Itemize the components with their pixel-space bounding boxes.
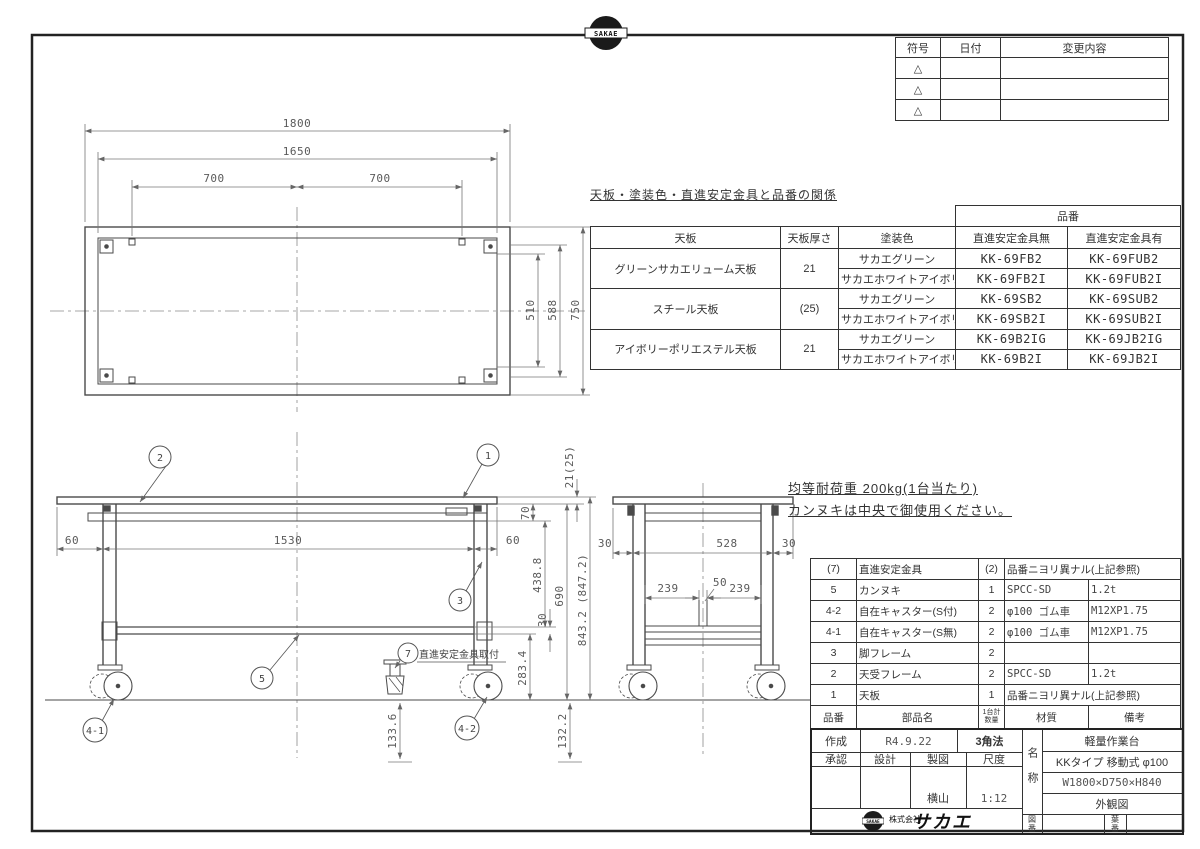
relation-part-no: KK-69SUB2I: [1068, 309, 1181, 329]
front-dim-133-6: 133.6: [386, 713, 399, 749]
parts-header-name: 部品名: [857, 706, 979, 729]
revision-symbol: △: [896, 58, 941, 79]
note-load-capacity: 均等耐荷重 200kg(1台当たり): [788, 478, 1012, 500]
part-material: 品番ニヨリ異ナル(上記参照): [1005, 559, 1181, 580]
front-dim-132-2: 132.2: [556, 713, 569, 749]
scale-label: 尺度: [966, 752, 1022, 766]
front-dim-60-right: 60: [506, 534, 520, 547]
relation-part-no: KK-69JB2I: [1068, 349, 1181, 369]
relation-part-no: KK-69FUB2: [1068, 249, 1181, 269]
name-label: 名称: [1022, 730, 1042, 814]
parts-header-no: 品番: [811, 706, 857, 729]
plan-view: [85, 227, 510, 395]
product-name: 軽量作業台: [1042, 730, 1182, 751]
approve-label: 承認: [812, 752, 860, 766]
drawing-sheet: 1800 1650 700 700 510 588 750: [0, 0, 1200, 849]
relation-part-no: KK-69B2IG: [956, 329, 1068, 349]
relation-color: サカエグリーン: [839, 249, 956, 269]
plan-dim-510: 510: [524, 299, 537, 320]
part-remarks: 1.2t: [1089, 580, 1181, 601]
relation-header-part-no: 品番: [956, 206, 1181, 227]
part-qty: 2: [979, 664, 1005, 685]
relation-part-no: KK-69FB2I: [956, 269, 1068, 289]
created-label: 作成: [812, 730, 860, 752]
parts-header-qty2: 数量: [981, 717, 1002, 725]
revision-date: [941, 79, 1001, 100]
part-no: 5: [811, 580, 857, 601]
plan-dim-588: 588: [546, 299, 559, 320]
revision-header-symbol: 符号: [896, 38, 941, 58]
relation-spacer: [591, 206, 956, 227]
side-dim-50: 50: [713, 576, 727, 589]
part-name: カンヌキ: [857, 580, 979, 601]
drawing-no-value: [1042, 814, 1104, 833]
relation-part-no: KK-69SB2: [956, 289, 1068, 309]
plan-dim-700-left: 700: [203, 172, 224, 185]
scale-value: 1:12: [966, 788, 1022, 808]
part-remarks: M12XP1.75: [1089, 622, 1181, 643]
revision-symbol: △: [896, 100, 941, 121]
revision-header-date: 日付: [941, 38, 1001, 58]
part-qty: (2): [979, 559, 1005, 580]
company-name-big: サカエ: [912, 808, 972, 833]
product-type: KKタイプ 移動式 φ100: [1042, 751, 1182, 772]
part-material: φ100 ゴム車: [1005, 622, 1089, 643]
part-name: 自在キャスター(S付): [857, 601, 979, 622]
revision-header-change: 変更内容: [1001, 38, 1169, 58]
relation-part-no: KK-69JB2IG: [1068, 329, 1181, 349]
relation-top-board: アイボリーポリエステル天板: [591, 329, 781, 369]
part-qty: 2: [979, 622, 1005, 643]
front-dim-690: 690: [553, 585, 566, 606]
revision-change: [1001, 58, 1169, 79]
plan-dim-750: 750: [569, 299, 582, 320]
relation-thickness: (25): [781, 289, 839, 329]
part-qty: 2: [979, 643, 1005, 664]
part-remarks: 1.2t: [1089, 664, 1181, 685]
front-dim-438-8: 438.8: [531, 557, 544, 593]
side-dim-239-left: 239: [657, 582, 678, 595]
balloon-7: 7: [405, 649, 411, 660]
balloon-4-1: 4-1: [86, 726, 104, 737]
side-dim-30-left: 30: [598, 537, 612, 550]
relation-thickness: 21: [781, 329, 839, 369]
parts-table: (7) 直進安定金具 (2) 品番ニヨリ異ナル(上記参照) 5 カンヌキ 1 S…: [810, 558, 1181, 729]
part-name: 天板: [857, 685, 979, 706]
relation-top-board: グリーンサカエリューム天板: [591, 249, 781, 289]
plan-view-dimensions: [85, 124, 590, 395]
part-name: 天受フレーム: [857, 664, 979, 685]
revision-table: 符号 日付 変更内容 △ △ △: [895, 37, 1169, 121]
relation-header-top-board: 天板: [591, 227, 781, 249]
sakae-stamp-top-text: SAKAE: [594, 30, 618, 38]
company-name-small: 株式会社: [889, 816, 907, 825]
balloon-4-2: 4-2: [458, 724, 476, 735]
drawing-kind: 外観図: [1042, 793, 1182, 814]
relation-header-paint-color: 塗装色: [839, 227, 956, 249]
front-dim-60-left: 60: [65, 534, 79, 547]
side-dim-528: 528: [716, 537, 737, 550]
relation-table: 品番 天板 天板厚さ 塗装色 直進安定金具無 直進安定金具有 グリーンサカエリュ…: [590, 205, 1181, 370]
part-name: 脚フレーム: [857, 643, 979, 664]
draft-label: 製図: [910, 752, 966, 766]
part-material: 品番ニヨリ異ナル(上記参照): [1005, 685, 1181, 706]
relation-part-no: KK-69FUB2I: [1068, 269, 1181, 289]
balloon-5: 5: [259, 674, 265, 685]
divider: [812, 766, 1022, 767]
front-dim-30: 30: [536, 613, 549, 627]
part-no: 4-2: [811, 601, 857, 622]
revision-date: [941, 100, 1001, 121]
front-dim-843-2: 843.2 (847.2): [576, 554, 589, 647]
relation-part-no: KK-69FB2: [956, 249, 1068, 269]
parts-header-qty1: 1台計: [981, 709, 1002, 717]
relation-table-title: 天板・塗装色・直進安定金具と品番の関係: [590, 186, 837, 203]
relation-color: サカエホワイトアイボリー: [839, 309, 956, 329]
part-no: 2: [811, 664, 857, 685]
relation-part-no: KK-69SB2I: [956, 309, 1068, 329]
part-no: 1: [811, 685, 857, 706]
part-material: SPCC-SD: [1005, 580, 1089, 601]
part-name: 自在キャスター(S無): [857, 622, 979, 643]
revision-change: [1001, 79, 1169, 100]
part-qty: 1: [979, 685, 1005, 706]
part-no: 3: [811, 643, 857, 664]
note-kannuki: カンヌキは中央で御使用ください。: [788, 500, 1012, 522]
part-material: SPCC-SD: [1005, 664, 1089, 685]
product-size: W1800×D750×H840: [1042, 772, 1182, 793]
projection-method: 3角法: [957, 730, 1022, 752]
notes: 均等耐荷重 200kg(1台当たり) カンヌキは中央で御使用ください。: [788, 478, 1012, 522]
relation-color: サカエホワイトアイボリー: [839, 349, 956, 369]
revision-change: [1001, 100, 1169, 121]
front-dim-283-4: 283.4: [516, 650, 529, 686]
part-material: φ100 ゴム車: [1005, 601, 1089, 622]
relation-header-with: 直進安定金具有: [1068, 227, 1181, 249]
plan-dim-1800: 1800: [283, 117, 312, 130]
front-dim-21-25: 21(25): [563, 446, 576, 489]
sheet-no-label: 葉番: [1104, 814, 1126, 833]
part-remarks: M12XP1.75: [1089, 601, 1181, 622]
sakae-logo-text: SAKAE: [866, 818, 880, 824]
drawing-no-label: 図番: [1022, 814, 1042, 833]
part-qty: 1: [979, 580, 1005, 601]
part-no: 4-1: [811, 622, 857, 643]
sakae-logo-icon: SAKAE: [862, 810, 884, 832]
part-remarks: [1089, 643, 1181, 664]
sheet-no-value: [1126, 814, 1182, 833]
parts-header-material: 材質: [1005, 706, 1089, 729]
relation-part-no: KK-69B2I: [956, 349, 1068, 369]
relation-part-no: KK-69SUB2: [1068, 289, 1181, 309]
relation-top-board: スチール天板: [591, 289, 781, 329]
relation-header-without: 直進安定金具無: [956, 227, 1068, 249]
relation-color: サカエグリーン: [839, 329, 956, 349]
part-qty: 2: [979, 601, 1005, 622]
relation-thickness: 21: [781, 249, 839, 289]
side-dim-239-right: 239: [729, 582, 750, 595]
relation-header-thickness: 天板厚さ: [781, 227, 839, 249]
part-name: 直進安定金具: [857, 559, 979, 580]
relation-color: サカエホワイトアイボリー: [839, 269, 956, 289]
sakae-stamp-top: SAKAE: [585, 16, 627, 50]
created-date: R4.9.22: [860, 730, 957, 752]
balloon-1: 1: [485, 451, 491, 462]
revision-symbol: △: [896, 79, 941, 100]
relation-color: サカエグリーン: [839, 289, 956, 309]
balloon-7-label: 直進安定金具取付: [419, 648, 499, 661]
plan-dim-1650: 1650: [283, 145, 312, 158]
side-dim-30-right: 30: [782, 537, 796, 550]
design-label: 設計: [860, 752, 910, 766]
drafter-name: 横山: [910, 788, 966, 808]
company-logo-cell: SAKAE 株式会社 サカエ: [812, 808, 1022, 833]
front-dim-1530: 1530: [274, 534, 303, 547]
front-view: [45, 497, 810, 700]
title-block: 作成 R4.9.22 3角法 承認 設計 製図 尺度 横山 1:12 SAKAE…: [810, 728, 1184, 835]
front-dim-70: 70: [519, 506, 532, 520]
parts-header-remarks: 備考: [1089, 706, 1181, 729]
part-material: [1005, 643, 1089, 664]
plan-dim-700-right: 700: [369, 172, 390, 185]
balloon-leaders: [83, 444, 506, 742]
part-no: (7): [811, 559, 857, 580]
balloon-2: 2: [157, 453, 163, 464]
revision-date: [941, 58, 1001, 79]
parts-header-qty: 1台計 数量: [979, 706, 1005, 729]
balloon-3: 3: [457, 596, 463, 607]
